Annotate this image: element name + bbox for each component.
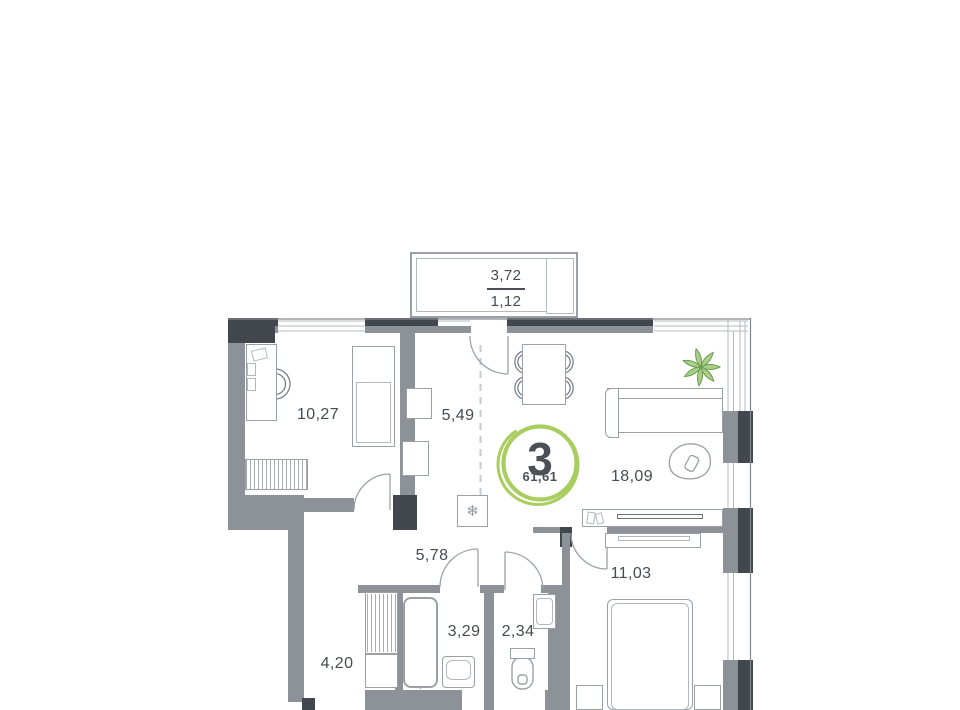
wall <box>228 495 304 530</box>
balcony-area-label: 3,72 <box>478 268 534 283</box>
wall <box>365 318 438 326</box>
total-area-badge: 61,61 <box>510 469 570 484</box>
room-area-label-study: 10,27 <box>288 407 348 423</box>
toilet-icon <box>512 657 533 689</box>
snowflake-icon: ❄ <box>457 495 488 526</box>
room-area-label-living: 18,09 <box>602 469 662 485</box>
wardrobe-icon <box>245 459 308 490</box>
room-area-label-hallway: 5,78 <box>404 548 460 564</box>
side-table-icon <box>669 444 710 479</box>
study-door-icon <box>354 474 390 510</box>
sofa-seat <box>607 398 723 433</box>
plan-linework <box>0 0 960 710</box>
wardrobe-divider <box>365 653 398 655</box>
room-area-label-kitchen: 5,49 <box>430 408 486 424</box>
nightstand-icon <box>694 685 721 710</box>
dining-table-icon <box>522 344 566 405</box>
wall <box>304 498 354 512</box>
wall <box>738 660 753 710</box>
wall <box>228 343 245 496</box>
room-area-label-bathroom: 3,29 <box>436 624 492 640</box>
wall <box>507 326 653 333</box>
wall-stub <box>302 698 315 710</box>
kitchen-sink-icon <box>402 441 429 476</box>
wall <box>480 585 504 593</box>
plant-icon <box>682 348 720 386</box>
wc-door-icon <box>505 552 543 590</box>
room-area-label-corridor: 4,20 <box>309 656 365 672</box>
wardrobe-clothes <box>367 594 396 652</box>
wall <box>723 660 738 710</box>
tv-icon <box>617 514 703 519</box>
bath-sink-bowl <box>446 660 471 680</box>
balcony-door-icon <box>470 336 508 374</box>
wall <box>541 585 570 593</box>
room-area-label-wc: 2,34 <box>490 624 546 640</box>
monitor-icon <box>247 363 256 376</box>
wall <box>723 411 738 463</box>
monitor-icon <box>247 378 256 391</box>
wall <box>738 508 753 573</box>
bedroom-door-icon <box>571 533 607 569</box>
wall <box>562 533 570 593</box>
toilet-tank <box>510 648 535 659</box>
wall-stub <box>365 690 462 710</box>
wall <box>484 593 494 710</box>
floor-plan: ❄ <box>0 0 960 710</box>
wall <box>507 318 653 326</box>
bed-mattress <box>356 382 391 443</box>
wall <box>288 530 304 702</box>
wall <box>393 495 417 530</box>
wall <box>723 508 738 573</box>
wall-stub <box>545 690 570 710</box>
room-area-label-bedroom: 11,03 <box>601 566 661 582</box>
bed-mattress <box>611 603 689 710</box>
nightstand-icon <box>576 685 603 710</box>
desk-chair-icon <box>275 369 290 399</box>
wc-basin-bowl <box>536 598 553 625</box>
stove-icon <box>406 388 432 419</box>
bathtub-icon <box>403 597 438 688</box>
wall-corner <box>228 318 275 343</box>
sofa-armrest <box>605 388 619 438</box>
balcony-area-divider <box>487 288 525 290</box>
window-sill <box>438 326 471 333</box>
tv-icon <box>618 536 690 541</box>
wall <box>738 411 753 463</box>
balcony-cabinet-icon <box>546 258 574 314</box>
wall <box>365 326 438 333</box>
balcony-reduced-area-label: 1,12 <box>478 294 534 309</box>
